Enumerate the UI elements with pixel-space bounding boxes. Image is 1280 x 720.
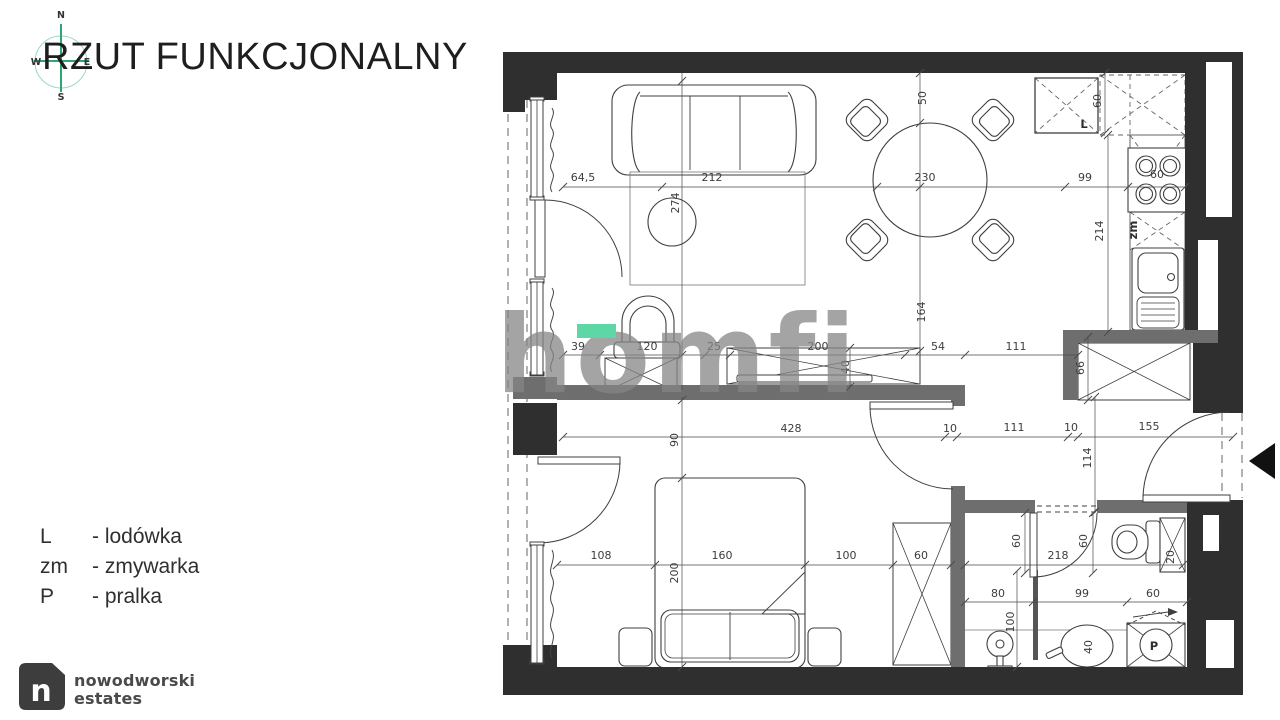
legend-item-dishwasher: zm - zmywarka xyxy=(40,552,199,582)
page: { "title": "RZUT FUNKCJONALNY", "compass… xyxy=(0,0,1280,720)
legend-name: - pralka xyxy=(92,585,162,609)
dimension-label: 100 xyxy=(1004,612,1017,633)
kitchen-sink xyxy=(1132,248,1184,330)
homfi-accent-bar xyxy=(577,324,616,338)
dimension-label: 60 xyxy=(1010,534,1023,548)
brand-mark-letter: n xyxy=(30,674,51,709)
legend-item-fridge: L - lodówka xyxy=(40,522,199,552)
dimension-label: 274 xyxy=(669,193,682,214)
legend-abbr: P xyxy=(40,585,92,609)
dimension-label: 164 xyxy=(915,302,928,323)
dimension-label: 218 xyxy=(1048,549,1069,562)
wall-niche xyxy=(1203,515,1219,551)
dimension-label: 114 xyxy=(1081,448,1094,469)
dimension-label: 40 xyxy=(1082,640,1095,654)
shower-partition xyxy=(1033,570,1038,660)
compass-w: W xyxy=(31,57,42,68)
legend-name: - zmywarka xyxy=(92,555,199,579)
page-title: RZUT FUNKCJONALNY xyxy=(42,36,468,79)
legend-name: - lodówka xyxy=(92,525,182,549)
dimension-label: 160 xyxy=(712,549,733,562)
entrance-arrow-icon xyxy=(1249,443,1275,479)
dimension-label: 200 xyxy=(668,563,681,584)
homfi-watermark: homfi xyxy=(496,302,859,410)
dimension-label: 60 xyxy=(1146,587,1160,600)
legend: L - lodówka zm - zmywarka P - pralka xyxy=(40,522,199,612)
brand-name-line2: estates xyxy=(74,691,142,707)
dimension-label: 10 xyxy=(1064,421,1078,434)
dimension-label: 60 xyxy=(1091,94,1104,108)
compass-n: N xyxy=(57,10,65,21)
legend-abbr: L xyxy=(40,525,92,549)
dimension-label: 428 xyxy=(781,422,802,435)
brand-name-line1: nowodworski xyxy=(74,673,195,689)
dimension-label: 111 xyxy=(1004,421,1025,434)
dimension-label: 50 xyxy=(916,91,929,105)
washbasin xyxy=(1045,625,1113,667)
dimension-label: 214 xyxy=(1093,221,1106,242)
dimension-label: 155 xyxy=(1139,420,1160,433)
dimension-label: 111 xyxy=(1006,340,1027,353)
brand-logo-icon: n xyxy=(19,663,65,710)
legend-abbr: zm xyxy=(40,555,92,579)
window-opening xyxy=(1206,62,1232,217)
hall-wardrobe xyxy=(1078,343,1190,400)
legend-item-washer: P - pralka xyxy=(40,582,199,612)
sofa xyxy=(612,85,816,175)
dimension-label: 230 xyxy=(915,171,936,184)
dimension-label: 100 xyxy=(836,549,857,562)
wall-niche xyxy=(1206,620,1234,668)
dimension-label: 212 xyxy=(702,171,723,184)
toilet xyxy=(1112,521,1160,563)
compass-s: S xyxy=(58,92,65,103)
appliance-label: zm xyxy=(1126,221,1140,240)
dimension-label: 60 xyxy=(914,549,928,562)
appliance-label: P xyxy=(1150,639,1158,653)
kitchen xyxy=(1035,75,1186,330)
dimension-label: 64,5 xyxy=(571,171,596,184)
balcony-door-bedroom xyxy=(538,457,620,543)
dimension-label: 99 xyxy=(1078,171,1092,184)
dimension-label: 108 xyxy=(591,549,612,562)
balcony-door-living xyxy=(535,200,622,277)
washing-machine xyxy=(1127,608,1185,667)
bedroom-wardrobe xyxy=(893,523,951,665)
dimension-label: 66 xyxy=(1074,361,1087,375)
appliance-label: L xyxy=(1080,117,1088,131)
dimension-label: 80 xyxy=(991,587,1005,600)
dimension-label: 10 xyxy=(943,422,957,435)
dimension-label: 60 xyxy=(1150,168,1164,181)
dimension-label: 99 xyxy=(1075,587,1089,600)
dimension-label: 60 xyxy=(1077,534,1090,548)
dimension-label: 54 xyxy=(931,340,945,353)
dimension-label: 20 xyxy=(1164,550,1177,564)
dimension-label: 90 xyxy=(668,433,681,447)
shower-fixture xyxy=(987,631,1013,671)
bedroom-door xyxy=(870,402,953,489)
